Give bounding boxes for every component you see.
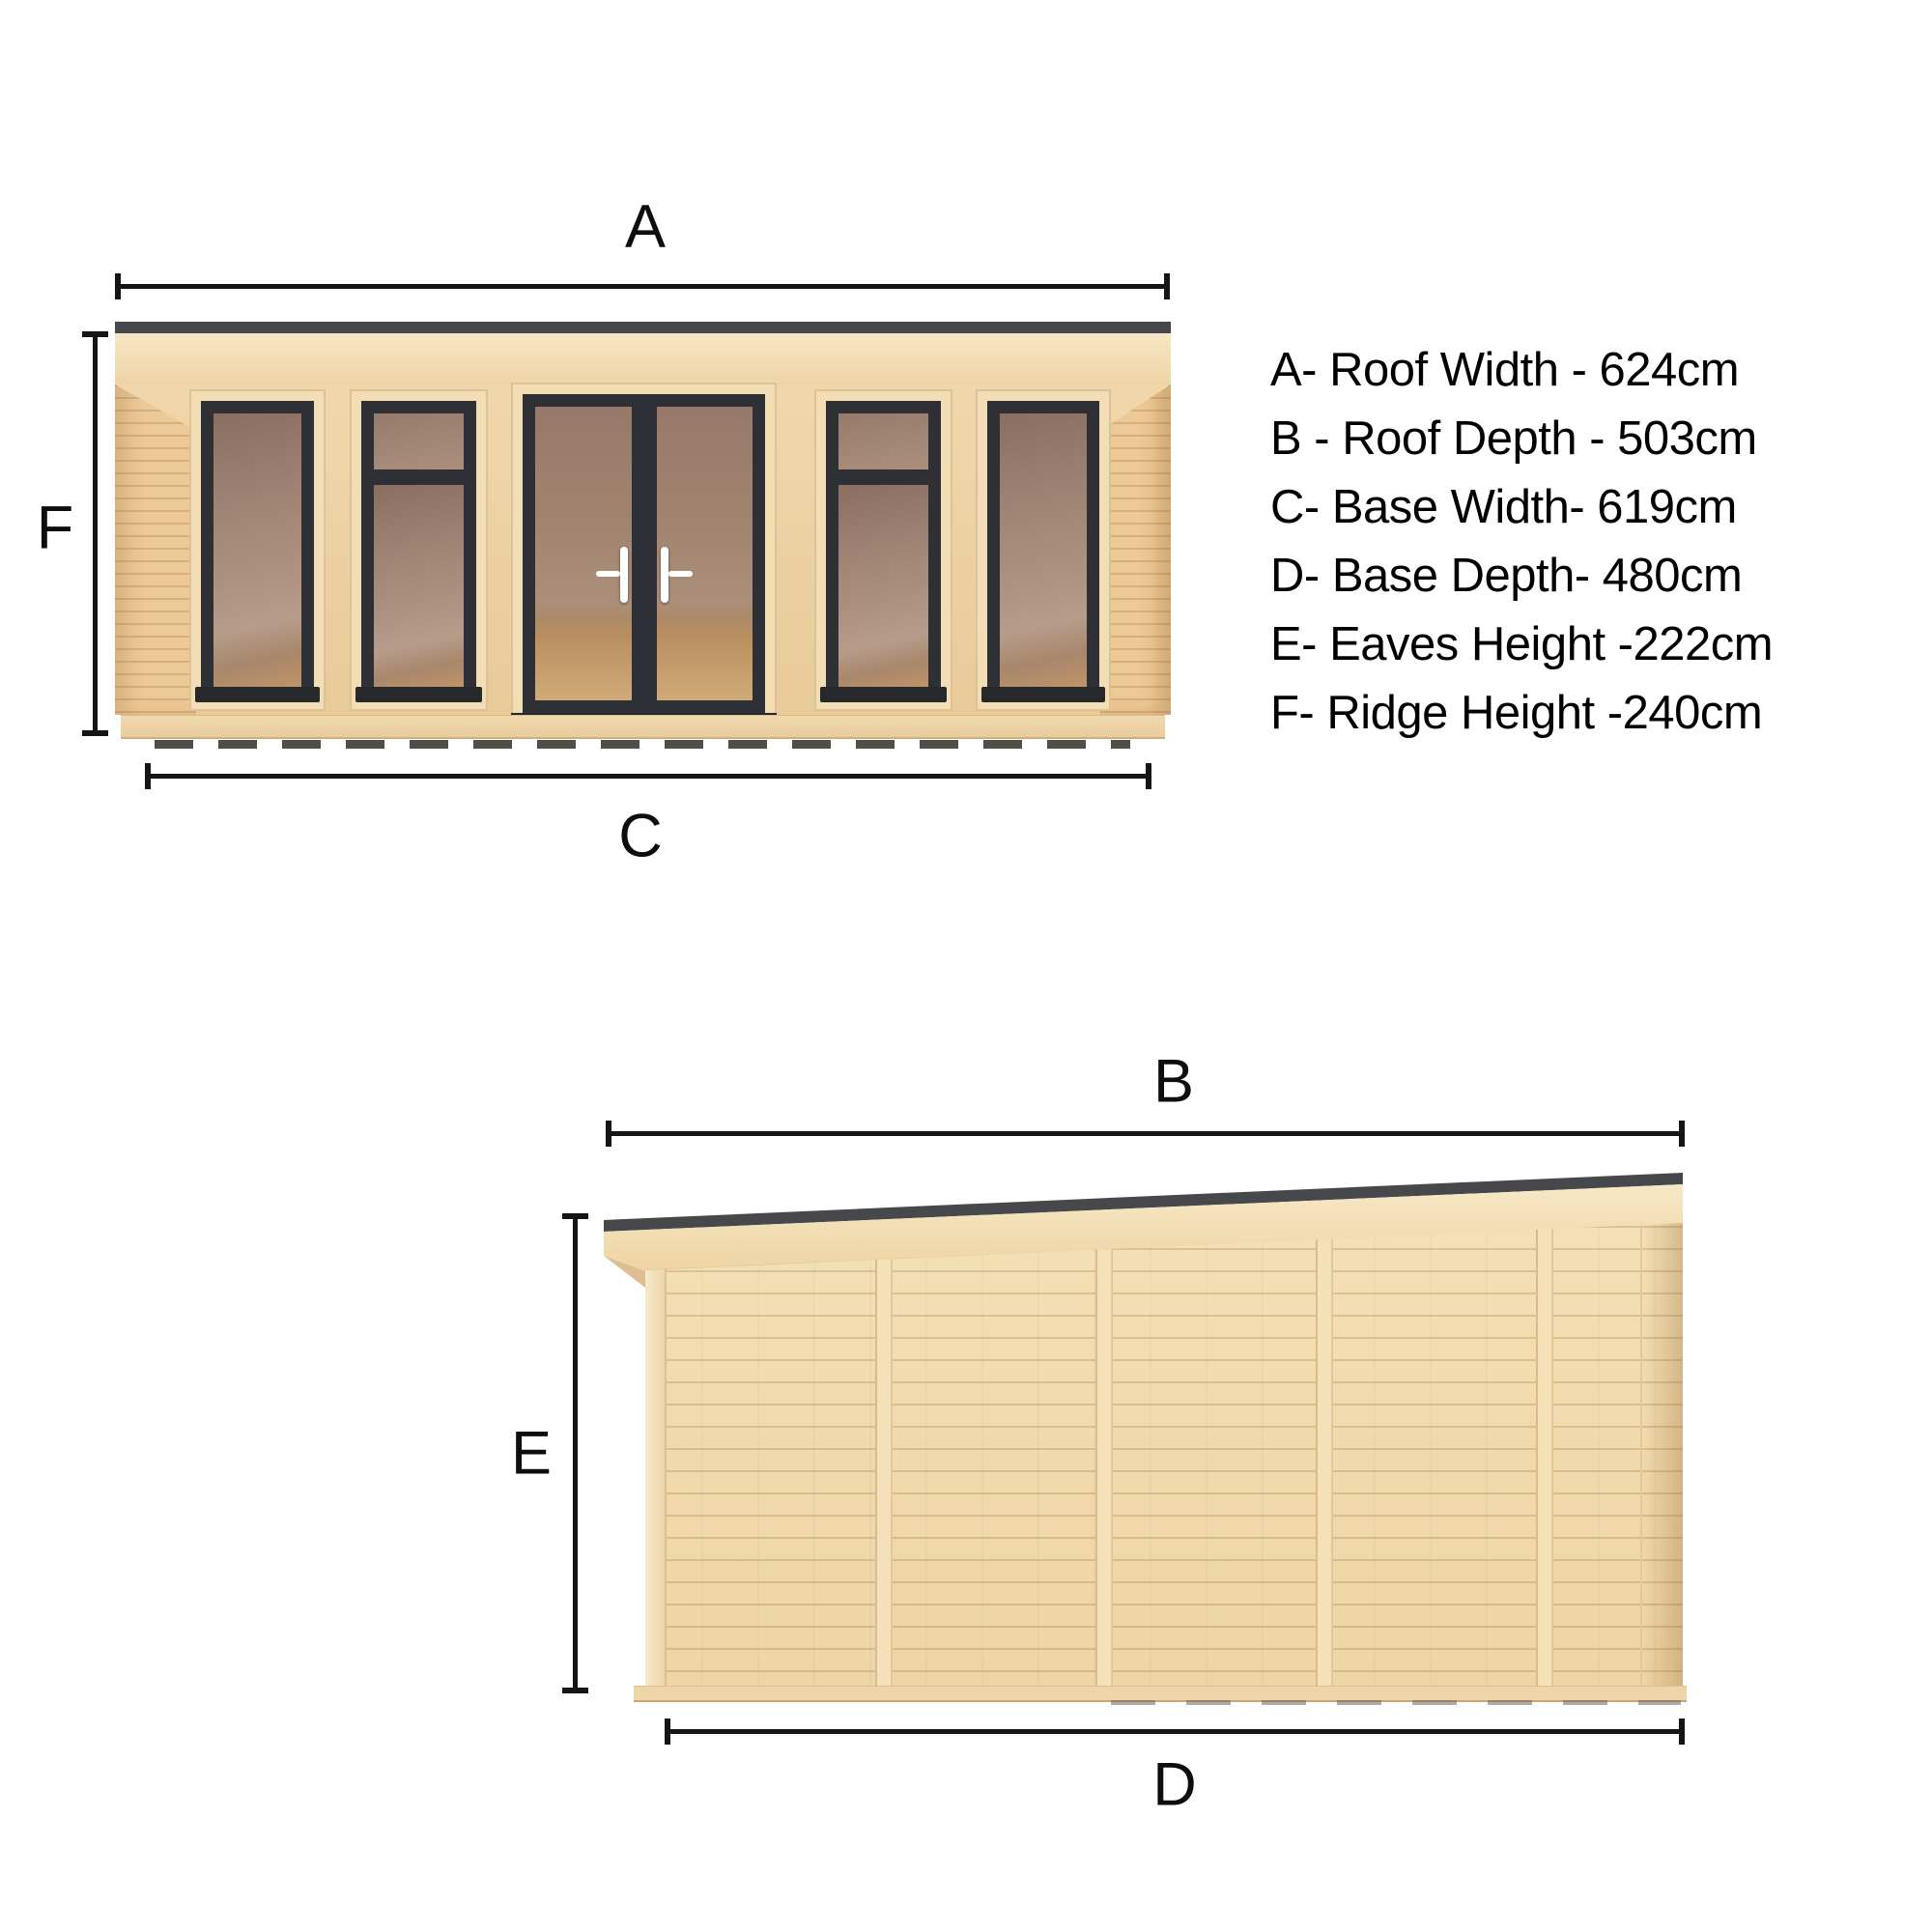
- window-glass: [838, 485, 928, 687]
- side-corner-trim: [645, 1159, 667, 1688]
- dim-label-ridge-height: F: [37, 498, 73, 559]
- side-batten: [1095, 1159, 1113, 1688]
- side-roof-overhang-soffit: [604, 1256, 645, 1288]
- dim-line-ridge-height: [93, 331, 98, 736]
- door-glass: [535, 407, 632, 700]
- legend-base-depth: D- Base Depth- 480cm: [1270, 541, 1773, 610]
- front-fascia-board: [115, 333, 1171, 386]
- front-double-doors: [523, 394, 765, 713]
- side-corner-shading: [1640, 1159, 1683, 1688]
- window-sill: [355, 687, 482, 702]
- front-right-return-wall: [1100, 384, 1171, 715]
- side-roof-felt-strip: [604, 1173, 1683, 1232]
- front-roof-edge: [115, 322, 1171, 333]
- window-glass: [1000, 413, 1087, 687]
- dim-label-base-width: C: [618, 807, 663, 867]
- side-base-shadow-dashes: [1111, 1700, 1681, 1705]
- front-window-3-transom: [826, 401, 941, 699]
- dim-label-roof-depth: B: [1153, 1052, 1194, 1113]
- dim-label-roof-width: A: [625, 197, 666, 258]
- side-batten: [875, 1159, 893, 1688]
- dim-line-base-width: [145, 774, 1151, 779]
- window-glass: [213, 413, 301, 687]
- front-floor-joist-shadows: [155, 740, 1130, 749]
- front-window-2-transom: [361, 401, 476, 699]
- side-elevation-wall: [645, 1159, 1683, 1688]
- dim-line-roof-width: [115, 284, 1170, 289]
- transom-bar: [838, 469, 928, 485]
- side-batten: [1536, 1159, 1553, 1688]
- dimension-legend: A- Roof Width - 624cm B - Roof Depth - 5…: [1270, 335, 1773, 747]
- window-glass: [374, 485, 464, 687]
- front-window-4-tall: [987, 401, 1099, 699]
- dim-line-eaves-height: [573, 1213, 578, 1693]
- transom-top-sash: [838, 413, 928, 469]
- door-left-leaf: [523, 394, 644, 713]
- dim-label-eaves-height: E: [511, 1424, 552, 1485]
- legend-roof-width: A- Roof Width - 624cm: [1270, 335, 1773, 404]
- door-handle-icon: [620, 547, 628, 603]
- window-sill: [820, 687, 947, 702]
- dim-label-base-depth: D: [1152, 1755, 1197, 1816]
- door-handle-icon: [661, 547, 668, 603]
- side-batten: [1316, 1159, 1333, 1688]
- legend-eaves-height: E- Eaves Height -222cm: [1270, 610, 1773, 678]
- dim-line-roof-depth: [606, 1131, 1685, 1136]
- dim-line-base-depth: [665, 1729, 1685, 1734]
- legend-ridge-height: F- Ridge Height -240cm: [1270, 678, 1773, 747]
- product-dimension-diagram: A F: [0, 0, 1932, 1932]
- transom-top-sash: [374, 413, 464, 469]
- legend-roof-depth: B - Roof Depth - 503cm: [1270, 404, 1773, 472]
- door-right-leaf: [644, 394, 766, 713]
- front-window-1-tall: [201, 401, 314, 699]
- window-sill: [195, 687, 320, 702]
- legend-base-width: C- Base Width- 619cm: [1270, 472, 1773, 541]
- front-facade: [115, 384, 1171, 715]
- front-left-return-wall: [115, 384, 196, 715]
- door-glass: [657, 407, 753, 700]
- transom-bar: [374, 469, 464, 485]
- front-elevation: [115, 322, 1171, 750]
- window-sill: [981, 687, 1105, 702]
- front-base-rail: [121, 715, 1165, 739]
